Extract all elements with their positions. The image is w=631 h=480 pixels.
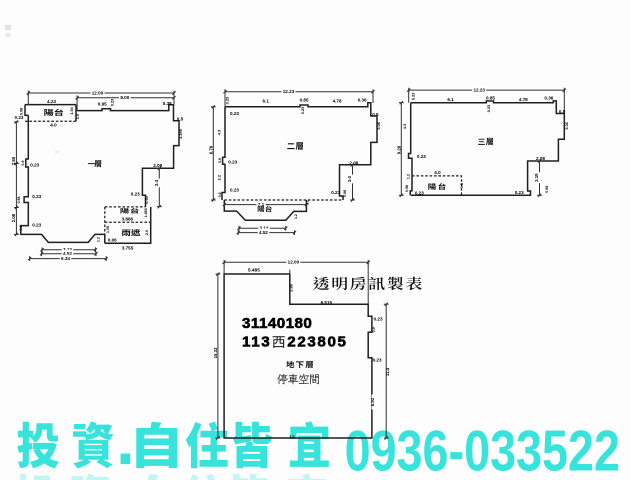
svg-text:0.23: 0.23: [230, 111, 239, 116]
svg-text:223805: 223805: [287, 334, 347, 351]
svg-text:0.23: 0.23: [32, 194, 41, 199]
svg-text:1.05: 1.05: [106, 226, 110, 233]
svg-text:5.485: 5.485: [248, 267, 260, 273]
svg-text:0.95: 0.95: [98, 101, 107, 106]
svg-text:2.08: 2.08: [153, 163, 162, 168]
svg-text:0.23: 0.23: [131, 192, 140, 197]
svg-text:6.1: 6.1: [447, 97, 454, 102]
svg-text:6.93: 6.93: [370, 397, 375, 406]
svg-text:0.95: 0.95: [144, 195, 149, 203]
svg-text:12.23: 12.23: [473, 88, 485, 93]
svg-text:1.0: 1.0: [75, 114, 80, 119]
svg-text:15.33: 15.33: [213, 347, 218, 358]
svg-text:0.98: 0.98: [19, 107, 24, 115]
svg-text:3.866: 3.866: [122, 217, 134, 222]
svg-text:3.19: 3.19: [534, 173, 539, 182]
svg-text:4.52: 4.52: [259, 230, 268, 235]
svg-text:0.85: 0.85: [300, 98, 309, 103]
svg-text:0.9: 0.9: [21, 161, 25, 166]
svg-text:3.0: 3.0: [347, 175, 352, 182]
svg-text:0.23: 0.23: [32, 223, 41, 228]
svg-text:6.515: 6.515: [321, 300, 333, 305]
svg-text:0.23: 0.23: [486, 104, 491, 112]
svg-text:6.78: 6.78: [209, 145, 214, 154]
svg-text:0.98: 0.98: [405, 185, 409, 192]
svg-text:0.23: 0.23: [30, 162, 39, 167]
svg-text:12.23: 12.23: [283, 89, 295, 94]
svg-text:4.0: 4.0: [434, 170, 441, 175]
svg-text:0.23: 0.23: [373, 357, 382, 362]
svg-text:0.23: 0.23: [411, 92, 416, 100]
svg-text:4.0: 4.0: [50, 123, 57, 128]
svg-text:3.295: 3.295: [178, 128, 183, 139]
svg-text:3.4: 3.4: [154, 179, 159, 186]
svg-text:0.5: 0.5: [177, 117, 184, 122]
svg-text:7.85: 7.85: [11, 156, 16, 165]
svg-text:2.2: 2.2: [216, 174, 221, 180]
svg-text:0.5: 0.5: [559, 109, 566, 114]
svg-text:0.98: 0.98: [343, 190, 347, 197]
svg-text:1.2: 1.2: [406, 174, 410, 179]
svg-text:3.06: 3.06: [376, 121, 381, 129]
svg-text:2.0: 2.0: [144, 230, 149, 235]
svg-text:11.4: 11.4: [385, 367, 390, 376]
svg-text:0.85: 0.85: [486, 96, 495, 101]
svg-text:1.2: 1.2: [294, 214, 298, 219]
svg-text:4.78: 4.78: [519, 97, 528, 102]
svg-text:1.54: 1.54: [69, 106, 74, 114]
svg-text:12.00: 12.00: [92, 90, 104, 95]
svg-text:0.98: 0.98: [545, 186, 549, 193]
svg-text:6.1: 6.1: [263, 98, 270, 103]
svg-text:2.08: 2.08: [536, 156, 545, 161]
svg-text:0936-033522: 0936-033522: [342, 472, 617, 480]
svg-text:0.98: 0.98: [17, 197, 21, 204]
svg-text:113: 113: [242, 334, 271, 351]
svg-text:12.00: 12.00: [288, 260, 300, 265]
svg-text:0.23: 0.23: [225, 96, 230, 104]
svg-text:0.06: 0.06: [108, 237, 117, 242]
svg-text:31140180: 31140180: [242, 315, 312, 332]
svg-text:2.08: 2.08: [349, 161, 358, 166]
svg-text:3.755: 3.755: [122, 246, 134, 251]
svg-text:2.08: 2.08: [11, 213, 16, 222]
svg-text:8.00: 8.00: [120, 95, 129, 100]
svg-text:0.9: 0.9: [372, 327, 376, 332]
svg-text:0.23: 0.23: [331, 190, 340, 195]
svg-text:6.34: 6.34: [61, 256, 70, 261]
svg-text:0.23: 0.23: [374, 317, 383, 322]
svg-text:4.23: 4.23: [47, 99, 56, 104]
svg-text:0.23: 0.23: [515, 190, 524, 195]
svg-text:9.28: 9.28: [397, 145, 402, 154]
svg-text:0.9: 0.9: [218, 158, 222, 163]
svg-text:1.1: 1.1: [306, 200, 310, 205]
svg-text:1.5: 1.5: [460, 183, 464, 188]
svg-text:0.23: 0.23: [15, 115, 24, 120]
svg-text:0.23: 0.23: [110, 98, 115, 106]
svg-text:0.36: 0.36: [544, 96, 553, 101]
svg-text:0.36: 0.36: [358, 98, 367, 103]
svg-text:0.6: 0.6: [218, 192, 222, 197]
svg-text:4.78: 4.78: [333, 98, 342, 103]
svg-text:4.3: 4.3: [216, 129, 221, 135]
svg-text:0.23: 0.23: [415, 190, 424, 195]
svg-text:0.23: 0.23: [228, 160, 237, 165]
svg-text:1.2: 1.2: [97, 237, 101, 242]
svg-text:0.23: 0.23: [417, 154, 426, 159]
svg-text:2.88: 2.88: [289, 283, 294, 291]
svg-text:0.5: 0.5: [372, 112, 379, 117]
svg-text:3.06: 3.06: [564, 121, 569, 129]
svg-text:0.23: 0.23: [300, 106, 305, 114]
svg-text:4.3: 4.3: [402, 123, 407, 129]
svg-text:0.38: 0.38: [163, 101, 172, 106]
svg-text:12.: 12.: [289, 435, 295, 440]
svg-text:0.23: 0.23: [230, 188, 239, 193]
svg-text:1.455: 1.455: [144, 208, 148, 217]
svg-text:0.9: 0.9: [19, 225, 23, 230]
